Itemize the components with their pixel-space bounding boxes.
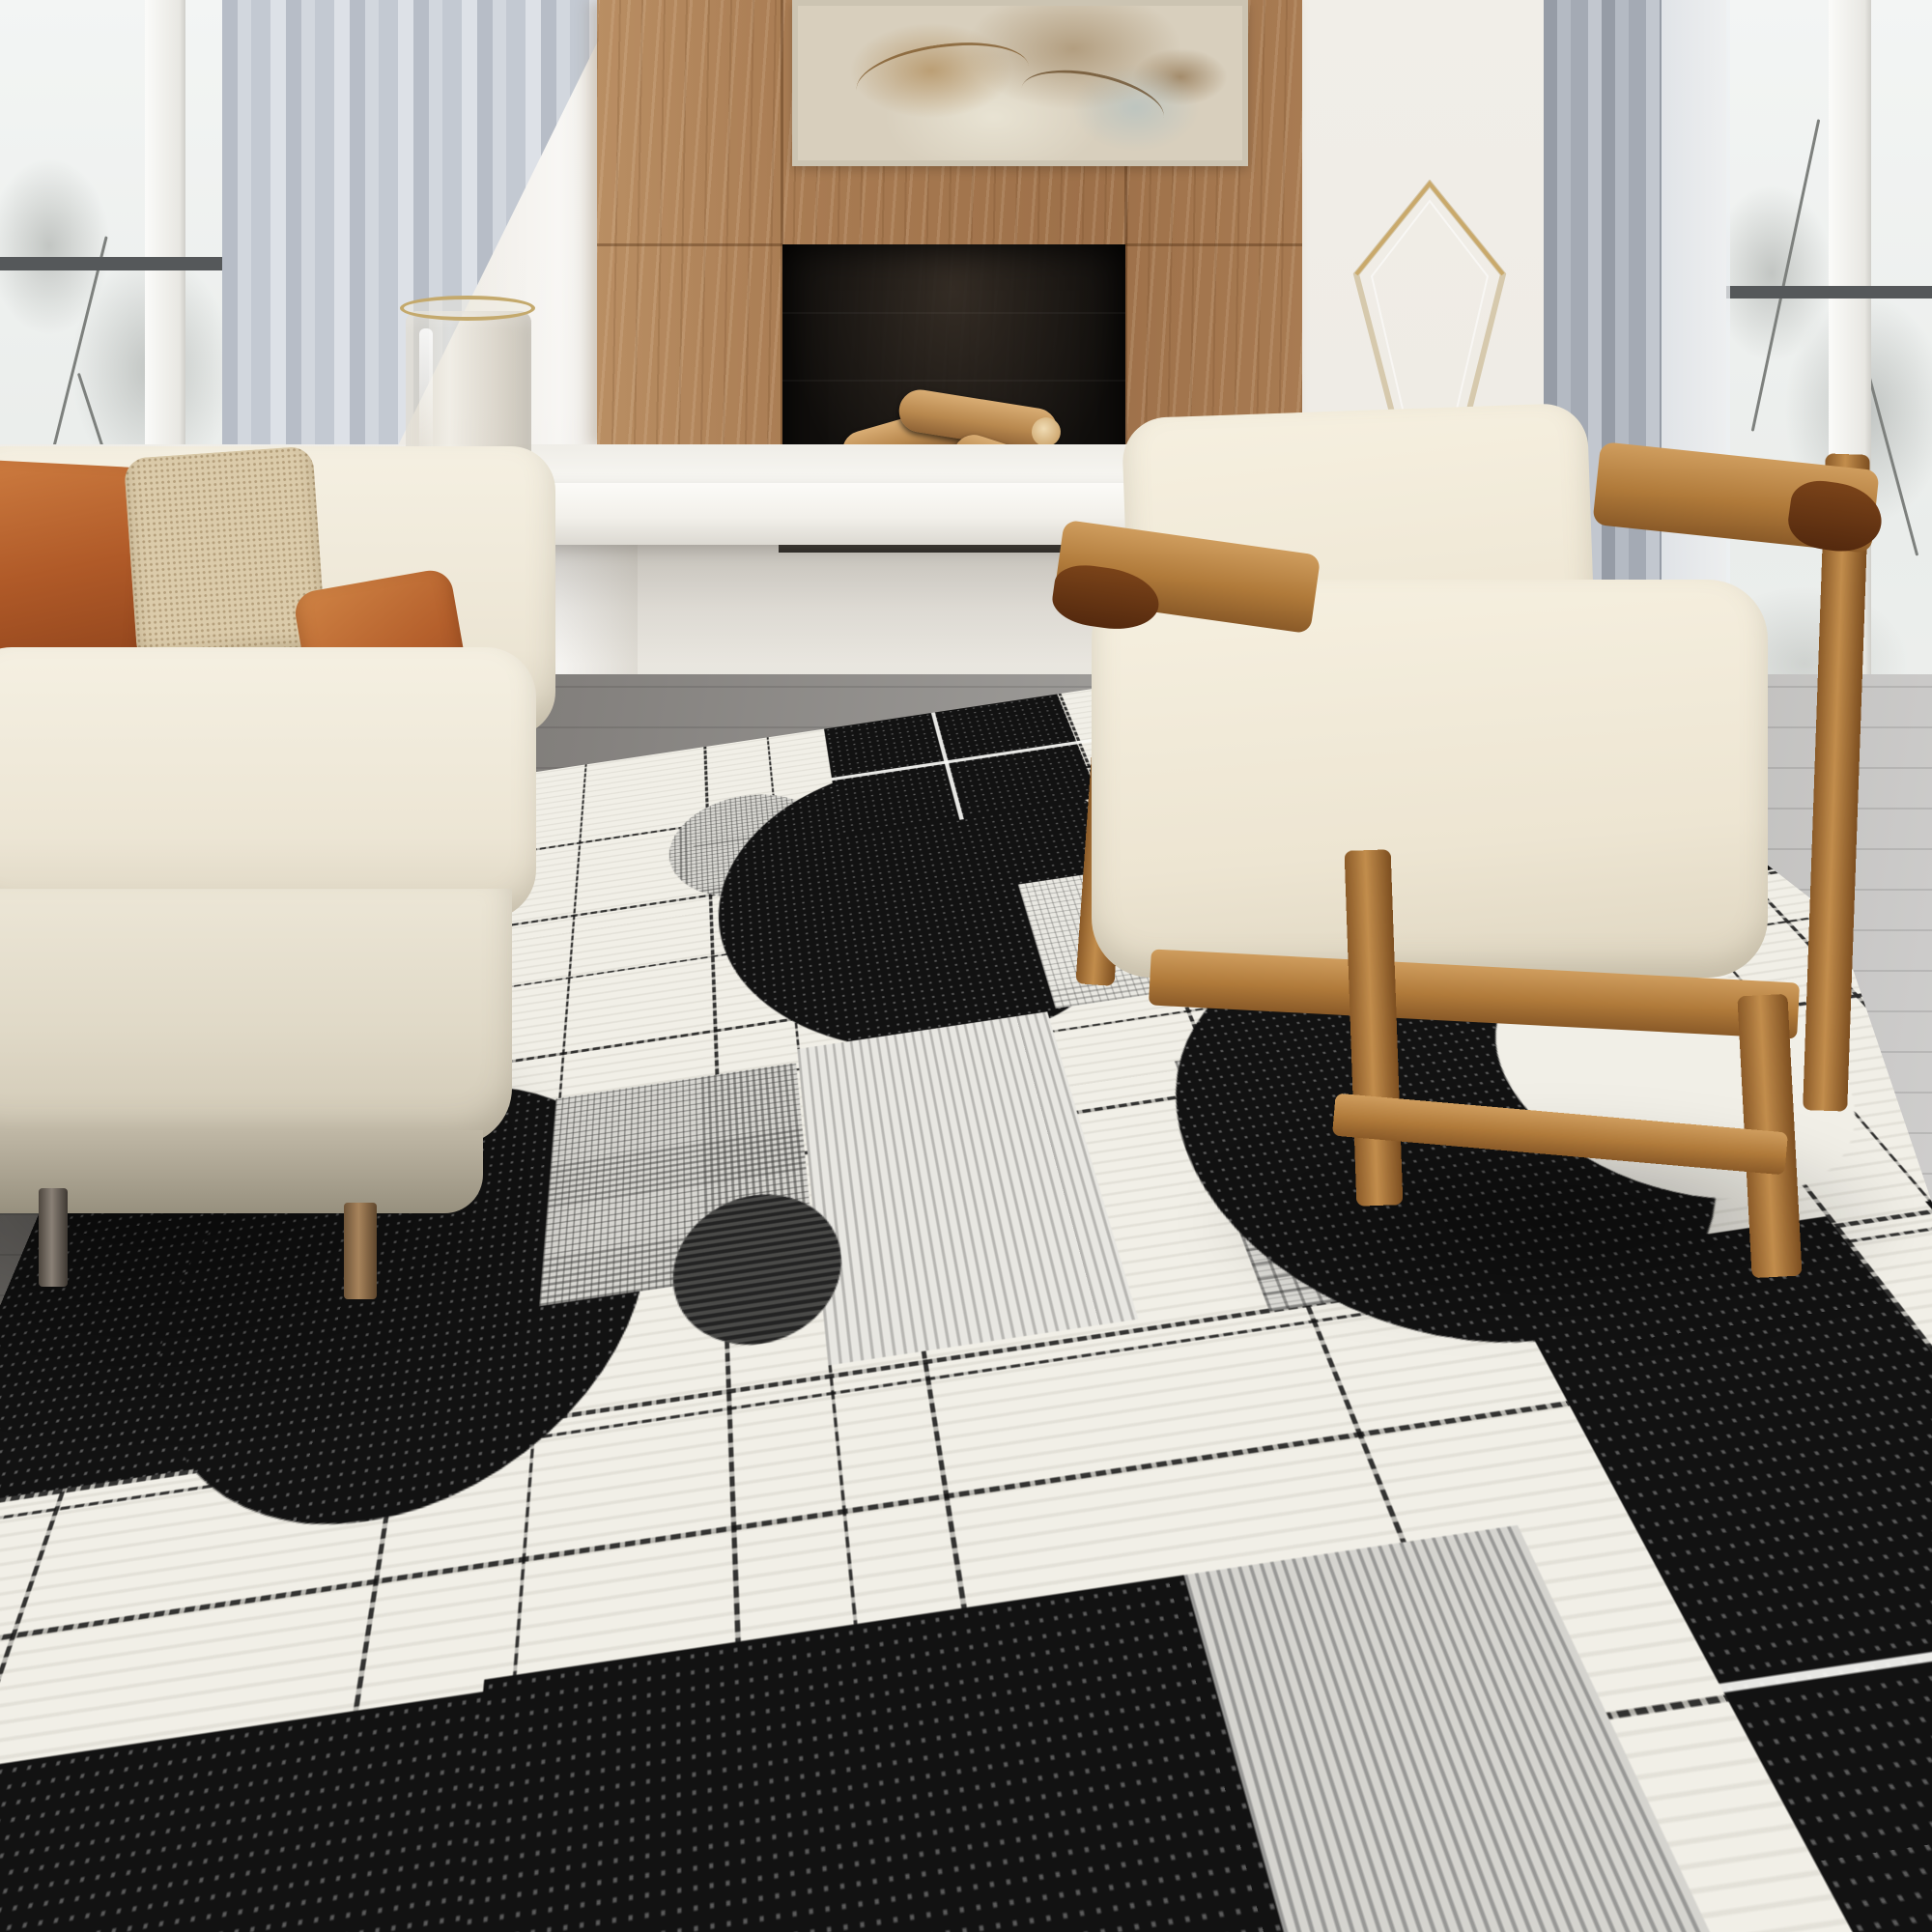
sofa-base bbox=[0, 889, 512, 1146]
sofa-leg bbox=[344, 1203, 377, 1299]
artwork-contour-line bbox=[852, 33, 1034, 124]
right-window-mullion bbox=[1726, 286, 1932, 298]
chair-seat-cushion bbox=[1092, 580, 1768, 978]
wood-seam bbox=[597, 243, 782, 246]
sofa-seat-cushion bbox=[0, 647, 536, 920]
wood-seam bbox=[1125, 243, 1302, 246]
vase-gold-rim bbox=[400, 296, 535, 321]
artwork-contour-line bbox=[1015, 59, 1169, 146]
beige-speckled-pillow bbox=[124, 445, 327, 665]
brick-line bbox=[782, 380, 1125, 382]
left-window-mullion bbox=[0, 257, 224, 270]
rug-shape-rect bbox=[797, 1011, 1138, 1365]
sofa-lower-frame bbox=[0, 1130, 483, 1213]
abstract-artwork bbox=[792, 0, 1248, 166]
brick-line bbox=[782, 312, 1125, 314]
living-room-scene bbox=[0, 0, 1932, 1932]
sofa-leg bbox=[39, 1188, 68, 1287]
vase-highlight bbox=[419, 328, 433, 454]
rug-shape-rect bbox=[0, 1691, 483, 1932]
